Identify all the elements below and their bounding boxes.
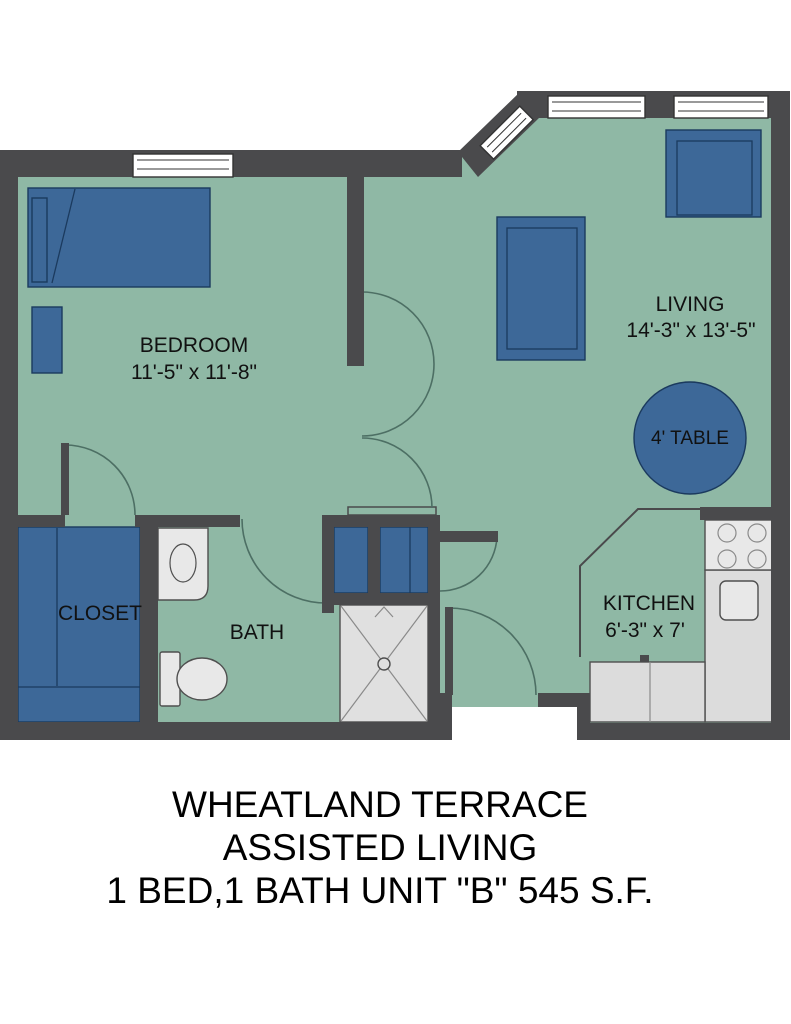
armchair	[666, 130, 761, 217]
closet-label: CLOSET	[58, 602, 142, 625]
cabinet-header-strip	[348, 507, 436, 515]
kitchen-label: KITCHEN	[603, 592, 695, 615]
wall-bath-right	[322, 515, 334, 613]
wall-right	[771, 91, 790, 740]
living-window-left-frame	[548, 96, 645, 118]
shower-drain	[378, 658, 390, 670]
wall-cabinet-top	[328, 515, 440, 527]
kitchen-dims: 6'-3" x 7'	[605, 619, 685, 642]
entry-door-leaf	[445, 607, 453, 695]
bedroom-window	[133, 154, 233, 177]
kitchen-sink	[720, 581, 758, 620]
wall-cabinet-bottom	[334, 593, 440, 605]
living-hall-door-leaf	[440, 531, 498, 542]
wall-closet-top-right	[135, 515, 240, 527]
plan-title-line-1: WHEATLAND TERRACE	[172, 784, 588, 825]
nightstand	[32, 307, 62, 373]
living-window-right-frame	[674, 96, 768, 118]
wall-bottom-kitchen	[577, 723, 790, 740]
closet-door-leaf	[61, 443, 69, 515]
toilet-bowl	[177, 658, 227, 700]
dining-table-label: 4' TABLE	[651, 428, 729, 449]
sofa	[497, 217, 585, 360]
wall-kitchen-top	[700, 507, 772, 520]
wall-left	[0, 150, 18, 740]
wall-bottom-left	[0, 722, 452, 740]
bathroom-sink-counter	[158, 528, 208, 600]
plan-title-line-2: ASSISTED LIVING	[223, 827, 538, 868]
floor-plan-drawing: BEDROOM 11'-5" x 11'-8" LIVING 14'-3" x …	[0, 0, 791, 1024]
bedroom-label: BEDROOM	[140, 334, 249, 357]
wall-bedroom-living	[347, 160, 364, 366]
bath-label: BATH	[230, 621, 284, 644]
hall-cabinet-left	[334, 527, 368, 593]
wall-closet-bath-divider	[140, 527, 158, 722]
kitchen-faucet	[640, 655, 649, 662]
living-dims: 14'-3" x 13'-5"	[626, 319, 755, 342]
kitchen-counter-bottom	[590, 662, 705, 722]
living-window-right	[674, 96, 768, 118]
stove	[705, 520, 772, 570]
plan-title-line-3: 1 BED,1 BATH UNIT "B" 545 S.F.	[106, 870, 653, 911]
hall-cabinet-right	[380, 527, 428, 593]
floor-plan-page: BEDROOM 11'-5" x 11'-8" LIVING 14'-3" x …	[0, 0, 791, 1024]
bedroom-window-frame	[133, 154, 233, 177]
entry-exterior-notch	[452, 707, 577, 767]
wall-cabinet-divider	[368, 527, 380, 593]
wall-entry-stub-left	[428, 693, 452, 723]
living-window-left	[548, 96, 645, 118]
bedroom-dims: 11'-5" x 11'-8"	[131, 361, 257, 384]
living-label: LIVING	[656, 293, 725, 316]
wall-closet-top-left	[0, 515, 65, 527]
bed-pillow	[32, 198, 47, 282]
